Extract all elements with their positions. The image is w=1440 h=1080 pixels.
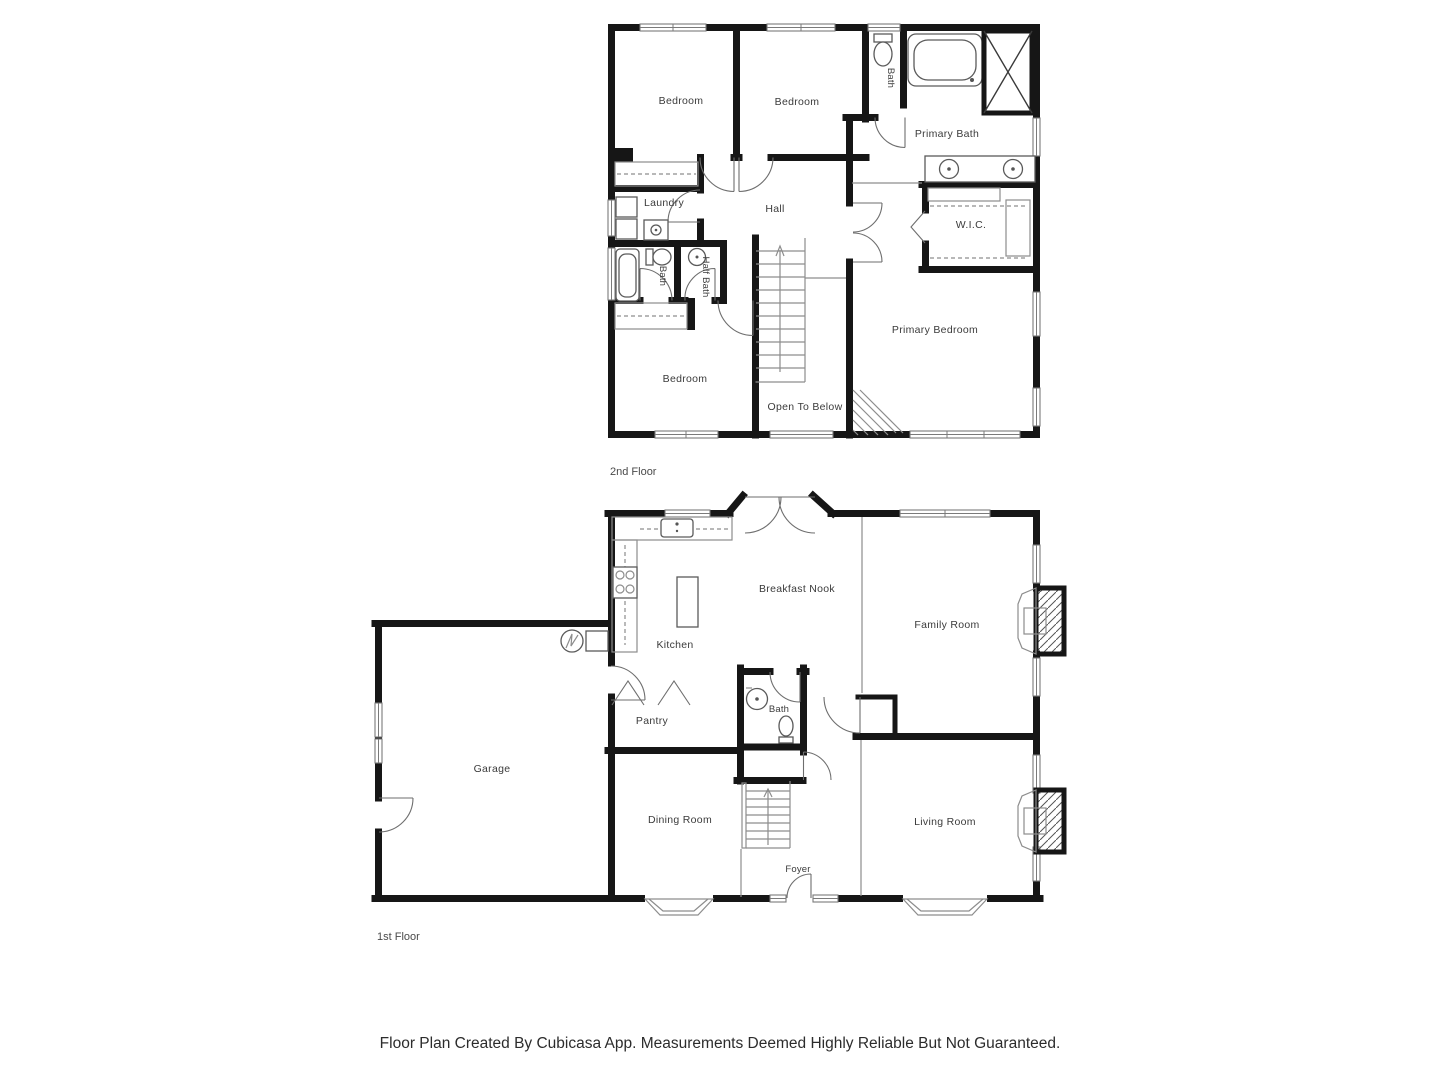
toilet-icon: [646, 249, 671, 265]
room-label-wic: W.I.C.: [956, 219, 986, 231]
toilet-icon: [874, 34, 892, 66]
furnace-icon: [586, 631, 608, 651]
room-label-garage: Garage: [474, 763, 511, 775]
bedroom-b-door: [739, 158, 773, 192]
living-room-fireplace: [1018, 790, 1064, 852]
room-label-open-to-below: Open To Below: [768, 401, 843, 413]
floor-plan-page: Bedroom Bedroom Bath Primary Bath Laundr…: [0, 0, 1440, 1080]
bath-door: [770, 672, 800, 702]
room-label-breakfast-nook: Breakfast Nook: [759, 583, 835, 595]
first-floor-plan: Kitchen Breakfast Nook Family Room Pantr…: [375, 496, 1064, 944]
room-label-bedroom-b: Bedroom: [775, 96, 820, 108]
fixtures: [561, 517, 862, 897]
room-label-bath-mid: Bath: [657, 266, 668, 286]
bedroom-c-door: [718, 301, 753, 336]
family-room-fireplace: [1018, 588, 1064, 654]
living-bay-window: [903, 894, 987, 915]
water-heater-icon: [561, 630, 583, 652]
stove-icon: [613, 567, 637, 598]
interior-walls: [608, 668, 1036, 781]
bathtub-icon: [908, 34, 982, 86]
second-floor-plan: Bedroom Bedroom Bath Primary Bath Laundr…: [608, 24, 1040, 478]
fireplaces: [1018, 588, 1064, 852]
primary-bedroom-door-right: [853, 233, 882, 262]
room-label-hall: Hall: [765, 203, 784, 215]
room-label-bedroom-a: Bedroom: [659, 95, 704, 107]
kitchen-sink-icon: [661, 519, 693, 537]
footer-disclaimer: Floor Plan Created By Cubicasa App. Meas…: [380, 1035, 1061, 1052]
room-label-bedroom-c: Bedroom: [663, 373, 708, 385]
laundry-sink-icon: [644, 220, 668, 240]
shower-icon: [984, 31, 1032, 113]
wic-bifold-door: [911, 211, 925, 243]
room-label-half-bath: Half Bath: [700, 257, 711, 298]
garage-side-door: [379, 798, 413, 832]
bath-sink-icon: [746, 688, 768, 710]
kitchen-island: [677, 577, 698, 627]
room-label-living-room: Living Room: [914, 816, 976, 828]
hall-closet-door: [804, 752, 832, 780]
windows: [375, 510, 1040, 902]
staircase: [756, 238, 847, 382]
family-room-door: [824, 697, 860, 733]
room-label-kitchen: Kitchen: [656, 639, 693, 651]
bathtub-icon: [616, 249, 639, 301]
pantry-bifold-doors: [612, 681, 690, 705]
primary-bedroom-door-left: [853, 203, 882, 232]
double-sink-icon: [925, 156, 1035, 182]
patio-french-door-left: [745, 497, 781, 533]
dining-bay-window: [645, 894, 713, 915]
room-label-bath: Bath: [769, 704, 789, 715]
room-label-foyer: Foyer: [785, 864, 810, 875]
exterior-walls: [375, 496, 1040, 899]
room-label-bath-top: Bath: [885, 68, 896, 88]
front-door: [787, 874, 811, 898]
room-label-primary-bedroom: Primary Bedroom: [892, 324, 978, 336]
sloped-hatch: [853, 390, 903, 435]
washer-dryer-icon: [616, 197, 637, 239]
bedroom-a-door: [700, 158, 734, 192]
doors: [379, 497, 860, 898]
second-floor-caption: 2nd Floor: [610, 466, 657, 478]
floor-plan-drawing: Bedroom Bedroom Bath Primary Bath Laundr…: [0, 0, 1440, 1080]
room-label-laundry: Laundry: [644, 197, 684, 209]
room-label-family-room: Family Room: [914, 619, 979, 631]
garage-entry-door: [611, 666, 645, 700]
staircase: [742, 781, 790, 848]
primary-bath-door: [875, 118, 905, 148]
room-label-pantry: Pantry: [636, 715, 669, 727]
toilet-icon: [779, 716, 793, 743]
room-label-primary-bath: Primary Bath: [915, 128, 979, 140]
patio-french-door-right: [779, 497, 815, 533]
first-floor-caption: 1st Floor: [377, 931, 420, 943]
room-label-dining-room: Dining Room: [648, 814, 712, 826]
